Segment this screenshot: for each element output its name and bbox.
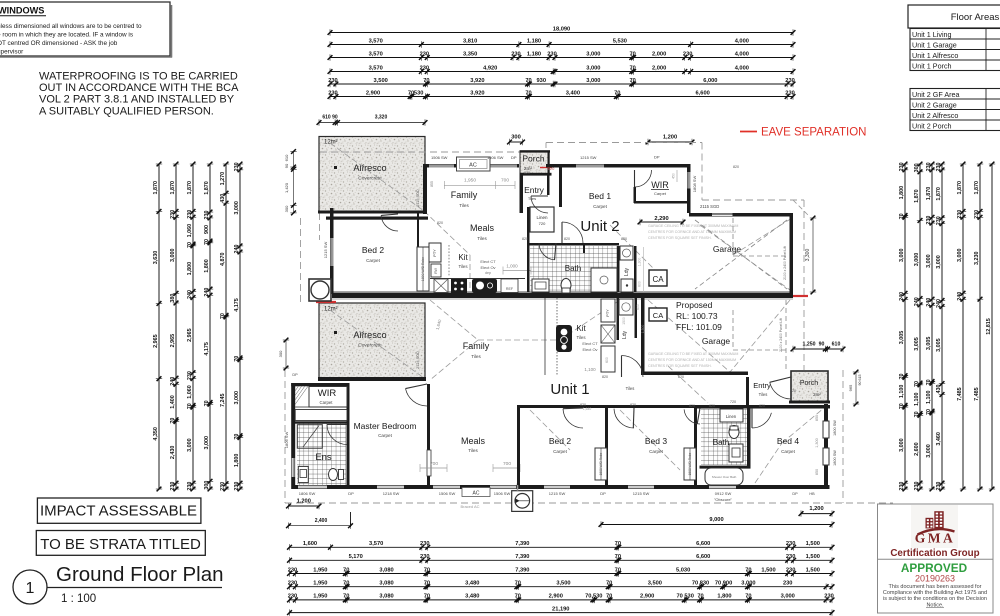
svg-text:DP: DP: [654, 155, 660, 160]
svg-text:230: 230: [786, 567, 796, 573]
svg-text:7,390: 7,390: [515, 541, 529, 547]
svg-text:820: 820: [522, 237, 528, 241]
svg-text:4,000: 4,000: [735, 65, 749, 71]
svg-text:2,965: 2,965: [170, 334, 176, 348]
svg-text:Bed 1: Bed 1: [589, 191, 611, 201]
svg-text:70: 70: [424, 594, 430, 600]
svg-text:1,800: 1,800: [717, 594, 731, 600]
svg-text:3,005: 3,005: [914, 337, 920, 351]
svg-text:1506 SW: 1506 SW: [439, 491, 456, 496]
svg-text:Tiles: Tiles: [477, 236, 487, 241]
svg-text:Tiles: Tiles: [626, 386, 635, 391]
svg-text:Bed 4: Bed 4: [777, 436, 799, 446]
svg-text:2,900: 2,900: [549, 594, 563, 600]
svg-text:IMPACT ASSESSABLE: IMPACT ASSESSABLE: [40, 502, 197, 519]
svg-text:1800 W/D Robe: 1800 W/D Robe: [688, 452, 692, 475]
svg-text:3,570: 3,570: [369, 541, 383, 547]
svg-text:Covercrete: Covercrete: [358, 343, 382, 349]
svg-text:"Obscure": "Obscure": [714, 497, 733, 502]
svg-text:240: 240: [204, 288, 210, 297]
svg-text:1800 W/D Robe: 1800 W/D Robe: [599, 452, 603, 475]
svg-text:20190263: 20190263: [915, 574, 955, 584]
svg-text:3,400: 3,400: [566, 90, 580, 96]
svg-text:Unit 2 Porch: Unit 2 Porch: [912, 121, 952, 130]
svg-text:Carpet: Carpet: [649, 449, 664, 454]
svg-text:3,920: 3,920: [470, 78, 484, 84]
svg-text:70: 70: [343, 594, 349, 600]
svg-text:Shower Over Bath: Shower Over Bath: [712, 475, 737, 479]
svg-text:2124 SOD: 2124 SOD: [416, 351, 420, 369]
svg-text:70: 70: [187, 242, 193, 248]
svg-text:Tiles: Tiles: [459, 203, 469, 208]
svg-text:Braced AC: Braced AC: [460, 504, 479, 509]
svg-text:700: 700: [501, 178, 509, 184]
svg-text:240: 240: [914, 297, 920, 306]
svg-text:70: 70: [204, 239, 210, 245]
svg-text:70: 70: [170, 418, 176, 424]
svg-text:TO BE STRATA TITLED: TO BE STRATA TITLED: [40, 536, 201, 553]
svg-text:12,815: 12,815: [986, 318, 992, 335]
svg-text:Unit 1: Unit 1: [550, 381, 589, 398]
svg-text:6,600: 6,600: [696, 90, 710, 96]
svg-text:70: 70: [745, 594, 751, 600]
svg-text:Elect Ov: Elect Ov: [582, 347, 597, 352]
svg-text:CENTRES FOR SQUARE SET FINISH.: CENTRES FOR SQUARE SET FINISH.: [648, 364, 712, 368]
svg-text:2,000: 2,000: [652, 51, 666, 57]
svg-text:1,870: 1,870: [957, 181, 963, 195]
svg-text:1,420: 1,420: [284, 182, 289, 193]
svg-text:70: 70: [615, 554, 621, 560]
svg-text:CENTRES FOR SQUARE SET FINISH.: CENTRES FOR SQUARE SET FINISH.: [648, 236, 712, 240]
svg-text:3,080: 3,080: [379, 581, 393, 587]
svg-text:1,100: 1,100: [899, 385, 905, 399]
svg-text:1,100: 1,100: [926, 390, 932, 404]
svg-text:70: 70: [343, 581, 349, 587]
svg-text:1,100: 1,100: [584, 367, 596, 372]
svg-text:Carpet: Carpet: [654, 191, 667, 196]
svg-text:21,190: 21,190: [552, 606, 569, 612]
svg-text:230: 230: [170, 210, 176, 219]
svg-text:70: 70: [629, 51, 635, 57]
svg-text:This document has been assesse: This document has been assessed for: [889, 584, 982, 590]
svg-text:upervisor: upervisor: [0, 48, 24, 55]
svg-text:1,180: 1,180: [527, 38, 541, 44]
svg-text:600: 600: [636, 304, 640, 310]
svg-text:230: 230: [926, 216, 932, 225]
svg-text:7,485: 7,485: [957, 387, 963, 401]
svg-text:4,000: 4,000: [735, 38, 749, 44]
svg-text:1,950: 1,950: [313, 594, 327, 600]
svg-text:600: 600: [638, 281, 642, 287]
svg-text:1215 SW: 1215 SW: [549, 491, 566, 496]
svg-text:Entry: Entry: [524, 185, 545, 195]
svg-text:1,200: 1,200: [297, 499, 311, 505]
svg-text:2115 SGD: 2115 SGD: [700, 204, 719, 209]
svg-text:Carpet: Carpet: [593, 204, 608, 209]
svg-text:5,170: 5,170: [349, 554, 363, 560]
svg-text:820: 820: [790, 389, 796, 393]
svg-text:3,480: 3,480: [465, 581, 479, 587]
svg-text:Tiles: Tiles: [576, 335, 586, 340]
svg-text:1,870: 1,870: [914, 189, 920, 203]
svg-text:70,530: 70,530: [585, 594, 602, 600]
svg-text:WIR: WIR: [651, 180, 669, 190]
svg-text:DP: DP: [292, 373, 298, 377]
svg-text:DP: DP: [511, 155, 517, 160]
svg-text:Ldy: Ldy: [622, 330, 628, 339]
svg-text:1,870: 1,870: [926, 187, 932, 201]
svg-text:450: 450: [672, 173, 676, 179]
svg-text:1,950: 1,950: [313, 567, 327, 573]
svg-text:Elect CT: Elect CT: [480, 259, 496, 264]
svg-text:230: 230: [328, 78, 338, 84]
svg-text:1,870: 1,870: [936, 187, 942, 201]
svg-text:850: 850: [815, 415, 819, 421]
svg-text:1: 1: [26, 580, 35, 597]
svg-text:1215 SW: 1215 SW: [633, 491, 650, 496]
svg-text:Ldy: Ldy: [624, 267, 630, 276]
svg-text:820: 820: [709, 404, 715, 408]
svg-text:70: 70: [187, 403, 193, 409]
svg-text:2,965: 2,965: [187, 328, 193, 342]
svg-text:230: 230: [785, 78, 795, 84]
svg-text:6,600: 6,600: [696, 554, 710, 560]
svg-text:dep: dep: [485, 271, 491, 275]
svg-text:230: 230: [914, 482, 920, 491]
svg-text:600: 600: [605, 357, 609, 363]
svg-text:230: 230: [785, 90, 795, 96]
svg-text:230: 230: [234, 162, 240, 171]
svg-text:1218 SW: 1218 SW: [383, 491, 400, 496]
svg-text:70: 70: [424, 581, 430, 587]
svg-text:3,000: 3,000: [586, 65, 600, 71]
svg-text:230: 230: [783, 581, 793, 587]
svg-text:230: 230: [683, 51, 693, 57]
svg-text:Kit: Kit: [458, 253, 468, 262]
svg-text:430: 430: [936, 385, 942, 394]
svg-text:Carpet: Carpet: [366, 258, 381, 263]
svg-text:70: 70: [926, 379, 932, 385]
svg-text:Unit 2 Alfresco: Unit 2 Alfresco: [912, 111, 958, 120]
svg-text:4,350: 4,350: [153, 427, 159, 441]
svg-text:2m²: 2m²: [813, 392, 821, 397]
svg-text:DP: DP: [600, 491, 606, 496]
svg-text:820: 820: [733, 165, 739, 169]
svg-text:70: 70: [525, 90, 531, 96]
svg-text:3,080: 3,080: [379, 594, 393, 600]
svg-text:1,000: 1,000: [506, 264, 518, 269]
svg-text:820: 820: [602, 375, 608, 379]
svg-text:230: 230: [899, 482, 905, 491]
svg-text:820: 820: [564, 237, 570, 241]
svg-text:Bed 3: Bed 3: [645, 436, 667, 446]
svg-text:Garage: Garage: [702, 336, 731, 346]
svg-text:820: 820: [759, 404, 765, 408]
svg-text:1215 SW: 1215 SW: [323, 242, 328, 259]
svg-text:Master Bedroom: Master Bedroom: [354, 421, 417, 431]
svg-text:RW: RW: [434, 267, 438, 273]
svg-text:430: 430: [220, 194, 226, 203]
svg-text:3,000: 3,000: [586, 51, 600, 57]
svg-text:2,430: 2,430: [170, 446, 176, 460]
svg-text:Unit 1 Alfresco: Unit 1 Alfresco: [912, 51, 958, 60]
svg-text:230: 230: [288, 581, 298, 587]
svg-text:4,175: 4,175: [204, 342, 210, 356]
svg-text:CENTRES FOR CORNICE AND AT 150: CENTRES FOR CORNICE AND AT 150MM MAXIMUM: [648, 358, 736, 362]
svg-text:9,000: 9,000: [709, 517, 723, 523]
svg-text:1,870: 1,870: [204, 181, 210, 195]
svg-text:70: 70: [423, 78, 429, 84]
svg-text:7,390: 7,390: [515, 567, 529, 573]
svg-text:820: 820: [437, 221, 443, 225]
svg-text:DP: DP: [792, 492, 798, 496]
svg-text:Unit 2: Unit 2: [580, 218, 619, 235]
svg-text:1,300: 1,300: [638, 258, 642, 267]
svg-text:3,080: 3,080: [379, 567, 393, 573]
svg-text:PTY: PTY: [606, 309, 610, 317]
svg-text:WINDOWS: WINDOWS: [0, 6, 44, 16]
svg-text:3,000: 3,000: [899, 249, 905, 263]
svg-text:230: 230: [420, 554, 430, 560]
svg-text:3,000: 3,000: [936, 255, 942, 269]
svg-text:3,630: 3,630: [153, 251, 159, 265]
svg-text:Meals: Meals: [470, 223, 495, 233]
svg-text:3,000: 3,000: [586, 78, 600, 84]
svg-text:Proposed: Proposed: [676, 300, 713, 310]
svg-text:1,870: 1,870: [170, 181, 176, 195]
svg-text:1,600: 1,600: [303, 541, 317, 547]
svg-text:1500: 1500: [622, 317, 626, 325]
svg-text:Linen: Linen: [726, 414, 737, 419]
svg-text:3,570: 3,570: [369, 38, 383, 44]
svg-text:Tiles: Tiles: [759, 392, 768, 397]
svg-text:1,060: 1,060: [187, 224, 193, 238]
svg-text:70: 70: [629, 65, 635, 71]
svg-text:3,000: 3,000: [234, 201, 240, 215]
svg-text:Garage: Garage: [713, 244, 742, 254]
svg-text:855: 855: [430, 181, 434, 187]
svg-text:3,570: 3,570: [369, 51, 383, 57]
svg-text:70: 70: [926, 409, 932, 415]
svg-text:4,175: 4,175: [234, 298, 240, 312]
svg-text:Certification Group: Certification Group: [890, 548, 979, 559]
svg-text:70 530: 70 530: [676, 594, 693, 600]
svg-text:Family: Family: [463, 341, 490, 351]
svg-text:3,005: 3,005: [936, 338, 942, 352]
svg-text:3,000: 3,000: [926, 254, 932, 268]
svg-text:RL: 100.73: RL: 100.73: [676, 311, 718, 321]
svg-text:EAVE SEPARATION: EAVE SEPARATION: [761, 127, 866, 139]
svg-text:Floor Areas: Floor Areas: [951, 12, 1000, 23]
svg-text:Unit 2 GF Area: Unit 2 GF Area: [912, 90, 960, 99]
svg-text:HB: HB: [809, 492, 815, 496]
svg-text:70: 70: [606, 581, 612, 587]
svg-text:2,000: 2,000: [652, 65, 666, 71]
svg-text:1506 SW: 1506 SW: [494, 491, 511, 496]
svg-text:1,870: 1,870: [974, 181, 980, 195]
svg-text:Carpet: Carpet: [378, 433, 393, 438]
svg-text:70: 70: [343, 567, 349, 573]
svg-text:6,600: 6,600: [696, 541, 710, 547]
svg-text:70 830: 70 830: [692, 581, 709, 587]
svg-text:230: 230: [786, 541, 796, 547]
svg-text:240: 240: [170, 377, 176, 386]
svg-text:230: 230: [288, 567, 298, 573]
svg-text:70: 70: [629, 78, 635, 84]
svg-text:1,500: 1,500: [806, 541, 820, 547]
svg-text:1,640: 1,640: [583, 407, 592, 411]
svg-text:90: 90: [284, 163, 289, 168]
svg-text:1800 W/D Robe: 1800 W/D Robe: [421, 257, 425, 281]
svg-text:70: 70: [525, 78, 531, 84]
svg-text:1,300: 1,300: [641, 325, 645, 334]
svg-text:230: 230: [187, 371, 193, 380]
svg-text:Ens: Ens: [315, 452, 332, 463]
svg-text:820: 820: [524, 171, 530, 175]
svg-text:1,500: 1,500: [806, 567, 820, 573]
svg-text:3,230: 3,230: [974, 251, 980, 265]
svg-text:230: 230: [170, 482, 176, 491]
svg-text:610: 610: [832, 342, 841, 348]
svg-text:3,300: 3,300: [805, 249, 811, 262]
svg-text:4,920: 4,920: [483, 65, 497, 71]
svg-text:930: 930: [537, 78, 547, 84]
svg-text:Family: Family: [451, 190, 478, 200]
svg-text:2,965: 2,965: [153, 334, 159, 348]
svg-text:1215 SW: 1215 SW: [580, 155, 597, 160]
svg-text:70: 70: [745, 567, 751, 573]
svg-text:1808 SW: 1808 SW: [692, 176, 697, 193]
svg-text:5,530: 5,530: [613, 38, 627, 44]
svg-text:230: 230: [234, 482, 240, 491]
svg-text:12m²: 12m²: [324, 307, 338, 313]
svg-text:1,800: 1,800: [234, 454, 240, 468]
svg-text:720: 720: [539, 221, 546, 226]
svg-text:380: 380: [170, 294, 176, 303]
svg-text:3,005: 3,005: [899, 331, 905, 345]
svg-text:1506 SW: 1506 SW: [487, 155, 504, 160]
svg-text:Unit 1 Living: Unit 1 Living: [912, 30, 952, 39]
svg-text:230: 230: [899, 162, 905, 171]
svg-text:7,245: 7,245: [220, 394, 226, 408]
svg-text:OT centred OR dimensioned - AS: OT centred OR dimensioned - ASK the job: [0, 40, 118, 47]
svg-text:70: 70: [515, 581, 521, 587]
svg-text:Elect CT: Elect CT: [582, 341, 598, 346]
svg-text:2100 x 2400 Panel Lift: 2100 x 2400 Panel Lift: [783, 246, 787, 280]
svg-text:3,460: 3,460: [936, 432, 942, 446]
svg-text:90: 90: [819, 342, 825, 348]
svg-text:70: 70: [204, 400, 210, 406]
svg-text:6,000: 6,000: [703, 78, 717, 84]
svg-text:CA: CA: [653, 311, 663, 320]
svg-text:230: 230: [420, 51, 430, 57]
svg-text:1,500: 1,500: [761, 567, 775, 573]
svg-text:3,000: 3,000: [914, 253, 920, 267]
svg-text:240: 240: [936, 299, 942, 308]
svg-text:WIR: WIR: [318, 388, 337, 399]
svg-text:240: 240: [234, 244, 240, 253]
svg-text:1506 SW: 1506 SW: [431, 155, 448, 160]
svg-text:230: 230: [328, 90, 338, 96]
svg-text:70: 70: [914, 411, 920, 417]
svg-text:820: 820: [678, 375, 684, 379]
svg-text:230: 230: [220, 482, 226, 491]
svg-text:3,000: 3,000: [899, 438, 905, 452]
svg-text:Porch: Porch: [800, 380, 818, 387]
svg-text:900: 900: [204, 225, 210, 234]
svg-text:Unit 1 Garage: Unit 1 Garage: [912, 40, 957, 49]
svg-text:1,180: 1,180: [527, 51, 541, 57]
svg-text:is subject to the conditions o: is subject to the conditions on the Deci…: [883, 596, 987, 602]
svg-text:CA: CA: [652, 275, 664, 284]
svg-text:70: 70: [615, 567, 621, 573]
svg-text:230: 230: [547, 51, 557, 57]
svg-text:820: 820: [630, 403, 636, 407]
svg-text:230: 230: [957, 210, 963, 219]
svg-text:3,000: 3,000: [204, 436, 210, 450]
svg-text:230: 230: [936, 482, 942, 491]
svg-text:230: 230: [936, 162, 942, 171]
svg-text:18,090: 18,090: [553, 26, 570, 32]
svg-text:3,920: 3,920: [470, 90, 484, 96]
svg-text:VOL 2 PART 3.8.1 AND INSTALLED: VOL 2 PART 3.8.1 AND INSTALLED BY: [39, 94, 235, 106]
svg-text:Bed 2: Bed 2: [549, 436, 571, 446]
svg-text:3,000: 3,000: [187, 438, 193, 452]
svg-text:1,950: 1,950: [464, 178, 476, 184]
svg-text:Meals: Meals: [461, 436, 486, 446]
svg-text:3,000: 3,000: [781, 594, 795, 600]
svg-text:230: 230: [187, 482, 193, 491]
svg-text:850: 850: [815, 469, 819, 475]
svg-text:CENTRES FOR CORNICE AND AT 150: CENTRES FOR CORNICE AND AT 150MM MAXIMUM: [648, 230, 736, 234]
svg-text:230: 230: [511, 51, 521, 57]
svg-text:7,485: 7,485: [974, 387, 980, 401]
svg-text:1,800: 1,800: [204, 259, 210, 273]
svg-text:230: 230: [204, 210, 210, 219]
svg-text:70 900: 70 900: [715, 581, 732, 587]
svg-text:240: 240: [926, 298, 932, 307]
svg-text:1806 SW: 1806 SW: [299, 491, 316, 496]
svg-text:230: 230: [187, 210, 193, 219]
svg-text:3,000: 3,000: [957, 248, 963, 262]
svg-text:300: 300: [204, 481, 210, 490]
svg-text:3,570: 3,570: [369, 65, 383, 71]
svg-text:70: 70: [614, 90, 620, 96]
svg-text:REF: REF: [506, 287, 514, 291]
svg-text:4,870: 4,870: [220, 252, 226, 266]
svg-text:WATERPROOFING IS TO BE CARRIED: WATERPROOFING IS TO BE CARRIED: [39, 71, 238, 83]
svg-text:2100 x 2400 Panel Lift: 2100 x 2400 Panel Lift: [779, 318, 783, 352]
svg-text:1806 SW: 1806 SW: [284, 432, 289, 449]
svg-text:1,870: 1,870: [187, 181, 193, 195]
svg-text:70: 70: [515, 594, 521, 600]
svg-text:A SUITABLY QUALIFIED PERSON.: A SUITABLY QUALIFIED PERSON.: [39, 106, 214, 118]
svg-text:2,900: 2,900: [366, 90, 380, 96]
svg-text:3,000: 3,000: [170, 249, 176, 263]
svg-text:820: 820: [689, 404, 695, 408]
svg-text:3,810: 3,810: [463, 38, 477, 44]
svg-text:1,950: 1,950: [313, 581, 327, 587]
svg-text:700: 700: [430, 461, 438, 467]
svg-text:Ground Floor Plan: Ground Floor Plan: [56, 563, 224, 586]
svg-text:DP: DP: [348, 491, 354, 496]
svg-text:4,000: 4,000: [735, 51, 749, 57]
svg-text:240: 240: [899, 292, 905, 301]
svg-text:Tiles: Tiles: [471, 354, 481, 359]
svg-text:70: 70: [424, 567, 430, 573]
svg-text:PTY: PTY: [433, 249, 437, 257]
svg-text:Bed 2: Bed 2: [362, 245, 384, 255]
